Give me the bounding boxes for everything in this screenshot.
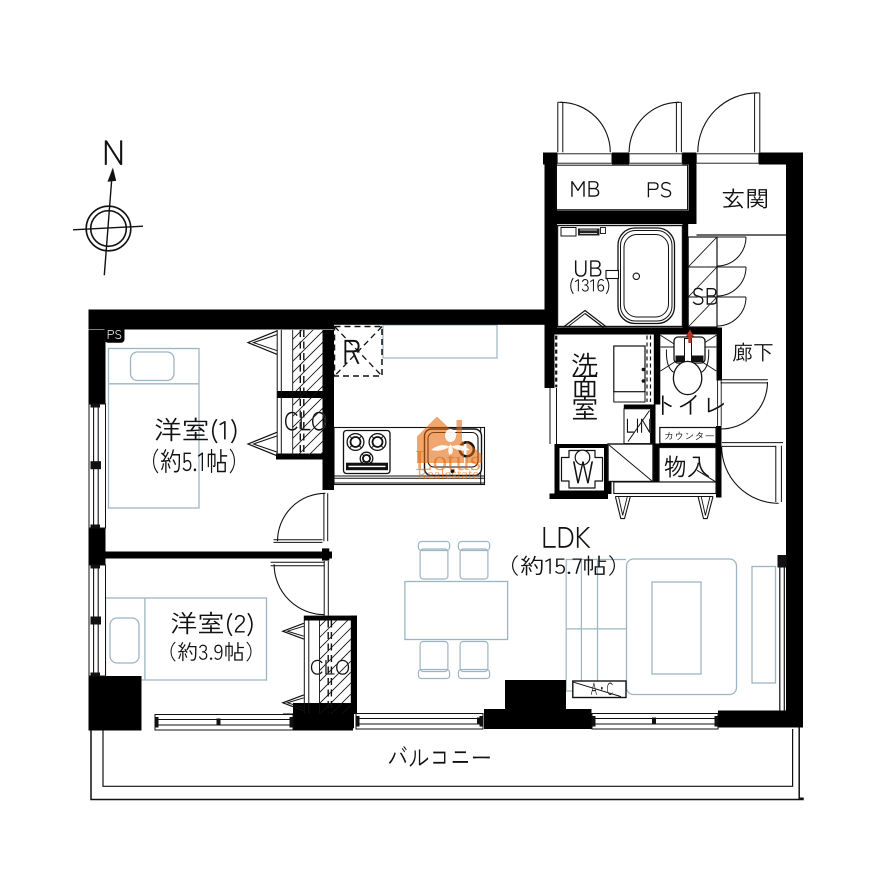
svg-text:Realestate: Realestate — [417, 467, 479, 483]
